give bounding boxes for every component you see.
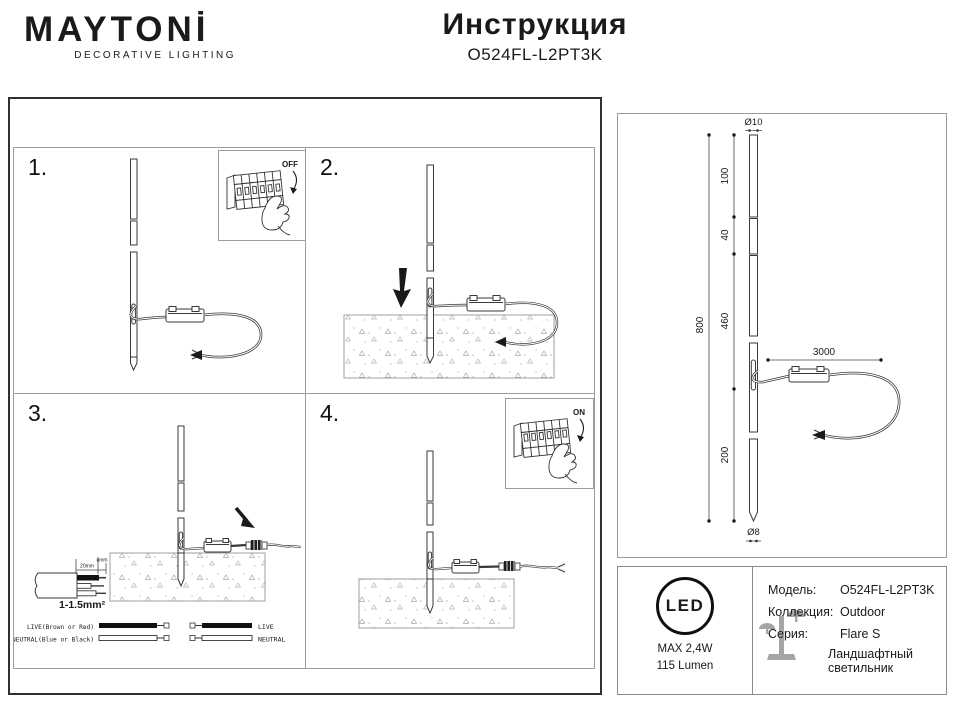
dim-segment-100: 100 <box>720 167 731 184</box>
led-badge: LED <box>656 577 714 635</box>
step-1-number: 1. <box>28 154 47 181</box>
breaker-inset-on: ON <box>505 398 594 489</box>
breaker-off-drawing: OFF <box>219 151 304 238</box>
led-info-cell: LED MAX 2,4W 115 Lumen <box>618 567 753 694</box>
dimensions-panel: Ø10 100 40 460 200 800 3000 Ø8 <box>617 113 947 558</box>
neutral-short-label: NEUTRAL <box>258 636 285 644</box>
luminous-flux-label: 115 Lumen <box>618 660 752 672</box>
breaker-on-drawing: ON <box>506 399 591 486</box>
page-title: Инструкция <box>370 8 700 42</box>
step-2-number: 2. <box>320 154 339 181</box>
step-4-cell: 4. <box>306 394 594 668</box>
model-label: Модель: <box>768 583 840 597</box>
series-value: Flare S <box>840 627 880 641</box>
neutral-wire-label: NEUTRAL(Blue or Black) <box>14 637 94 644</box>
brand-logo: MAYTONİ DECORATIVE LIGHTING <box>24 12 236 61</box>
cable-connector <box>246 540 267 550</box>
collection-label: Коллекция: <box>768 605 840 619</box>
step-2-illustration <box>306 148 594 394</box>
cable-strip-detail: 20mm 8mm 1-1.5mm² <box>35 558 107 612</box>
dim-top-diameter: Ø10 <box>745 117 763 128</box>
step-3-illustration: 20mm 8mm 1-1.5mm² LIVE(Brown or Red) LIV… <box>14 394 306 668</box>
dim-segment-200: 200 <box>720 446 731 463</box>
wire-cross-section-label: 1-1.5mm² <box>59 599 106 611</box>
push-down-arrow <box>393 268 411 308</box>
step-4-number: 4. <box>320 400 339 427</box>
dim-overall-height: 800 <box>695 316 706 333</box>
collection-row: Коллекция: Outdoor <box>768 605 946 619</box>
breaker-on-label: ON <box>573 408 585 417</box>
title-model-code: O524FL-L2PT3K <box>370 45 700 65</box>
step-1-cell: 1. <box>14 148 306 394</box>
bare-length-label: 8mm <box>96 558 107 564</box>
product-info-panel: LED MAX 2,4W 115 Lumen Модель: O524FL-L2… <box>617 566 947 695</box>
model-value: O524FL-L2PT3K <box>840 583 935 597</box>
dim-cable-length: 3000 <box>813 347 836 358</box>
strip-length-label: 20mm <box>80 564 94 570</box>
series-row: Серия: Flare S <box>768 627 946 641</box>
ground-block <box>359 579 514 628</box>
live-short-label: LIVE <box>258 623 274 631</box>
product-details-cell: Модель: O524FL-L2PT3K Коллекция: Outdoor… <box>753 567 946 694</box>
series-note: Ландшафтный светильник <box>828 647 946 675</box>
step-3-cell: 3. <box>14 394 306 668</box>
collection-value: Outdoor <box>840 605 885 619</box>
ground-block <box>344 315 554 378</box>
breaker-off-label: OFF <box>282 160 298 169</box>
ground-block <box>110 553 265 601</box>
installation-steps-panel: 1. <box>8 97 602 695</box>
series-label: Серия: <box>768 627 840 641</box>
wiring-legend: LIVE(Brown or Red) LIVE NEUTRAL(Blue or … <box>14 623 285 644</box>
model-row: Модель: O524FL-L2PT3K <box>768 583 946 597</box>
max-power-label: MAX 2,4W <box>618 643 752 655</box>
step-2-cell: 2. <box>306 148 594 394</box>
dim-segment-40: 40 <box>720 229 731 241</box>
cable-connector <box>499 561 520 571</box>
title-block: Инструкция O524FL-L2PT3K <box>370 8 700 65</box>
product-fields: Модель: O524FL-L2PT3K Коллекция: Outdoor… <box>768 583 946 675</box>
brand-wordmark: MAYTONİ <box>24 12 236 47</box>
step-3-number: 3. <box>28 400 47 427</box>
brand-tagline: DECORATIVE LIGHTING <box>24 50 236 61</box>
instruction-sheet: MAYTONİ DECORATIVE LIGHTING Инструкция O… <box>0 0 960 704</box>
dim-segment-460: 460 <box>720 312 731 329</box>
breaker-inset-off: OFF <box>218 150 306 241</box>
live-wire-label: LIVE(Brown or Red) <box>27 624 94 631</box>
steps-grid: 1. <box>13 147 595 669</box>
dimensions-drawing: Ø10 100 40 460 200 800 3000 Ø8 <box>618 114 946 557</box>
dim-bottom-diameter: Ø8 <box>747 527 760 538</box>
